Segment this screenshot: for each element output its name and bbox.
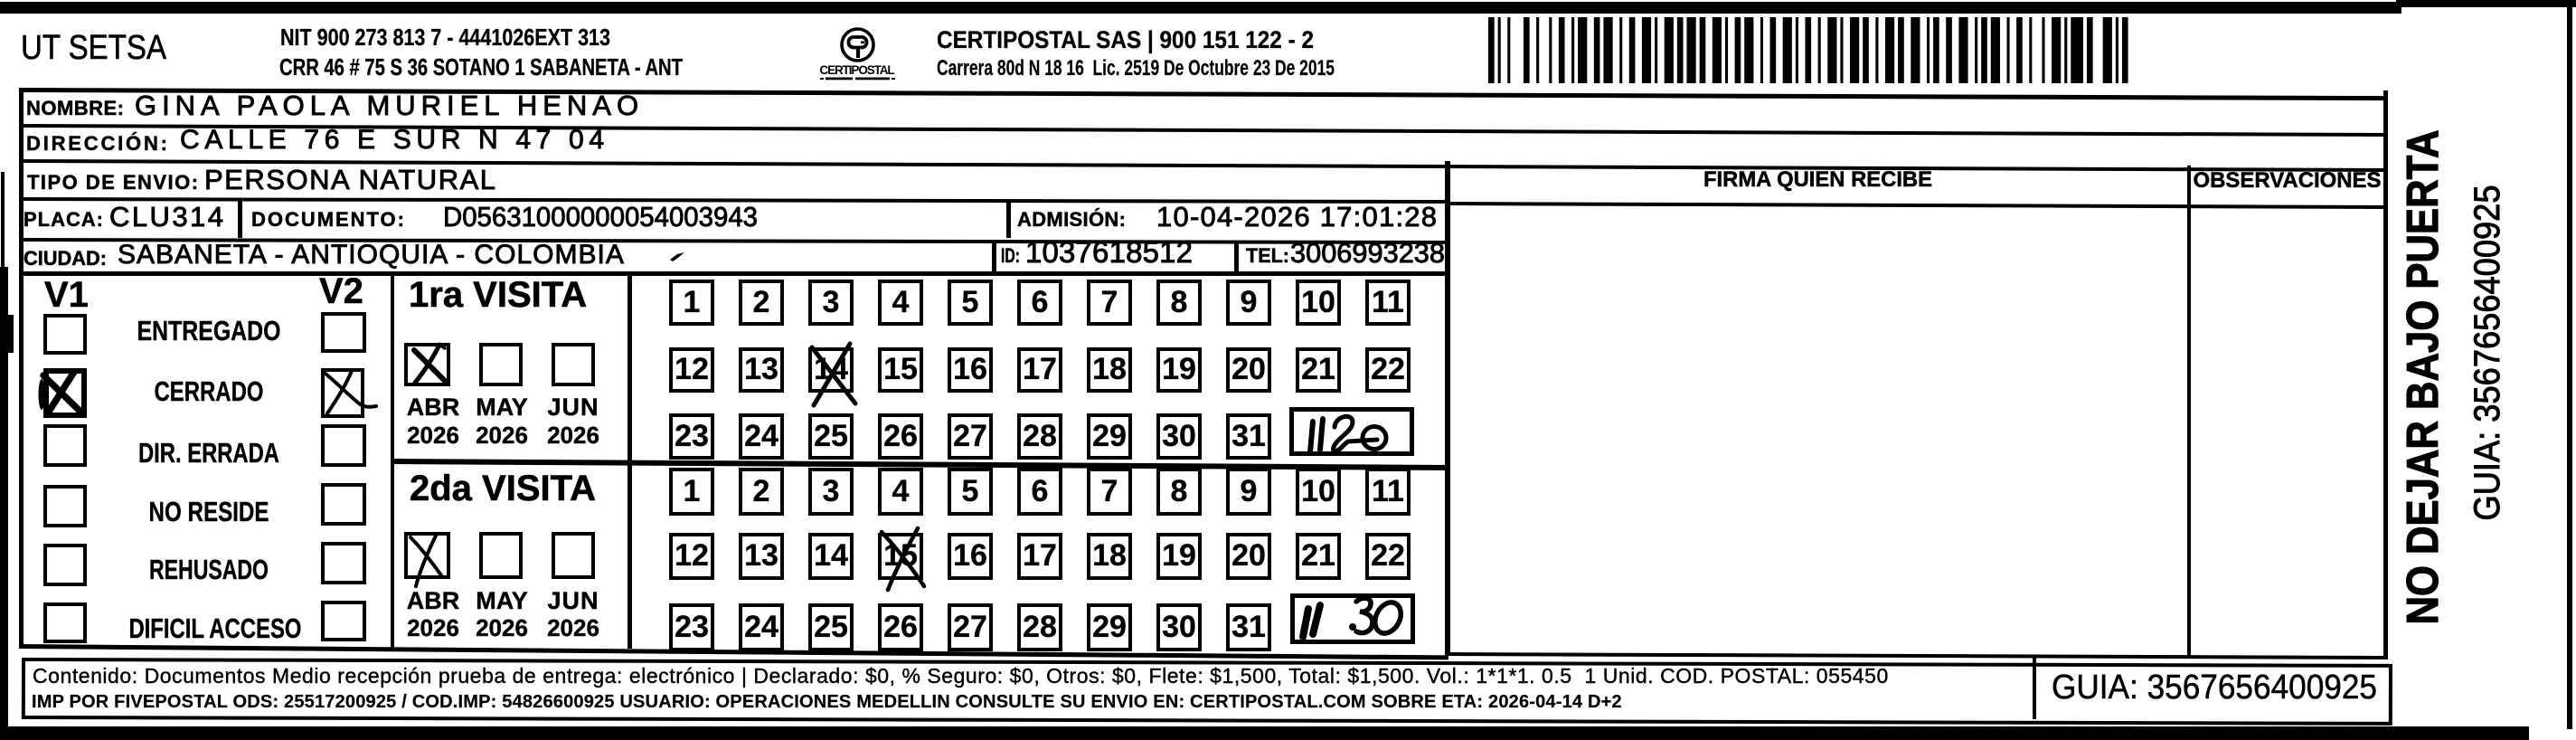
svg-text:CERTIPOSTAL: CERTIPOSTAL bbox=[819, 63, 894, 77]
